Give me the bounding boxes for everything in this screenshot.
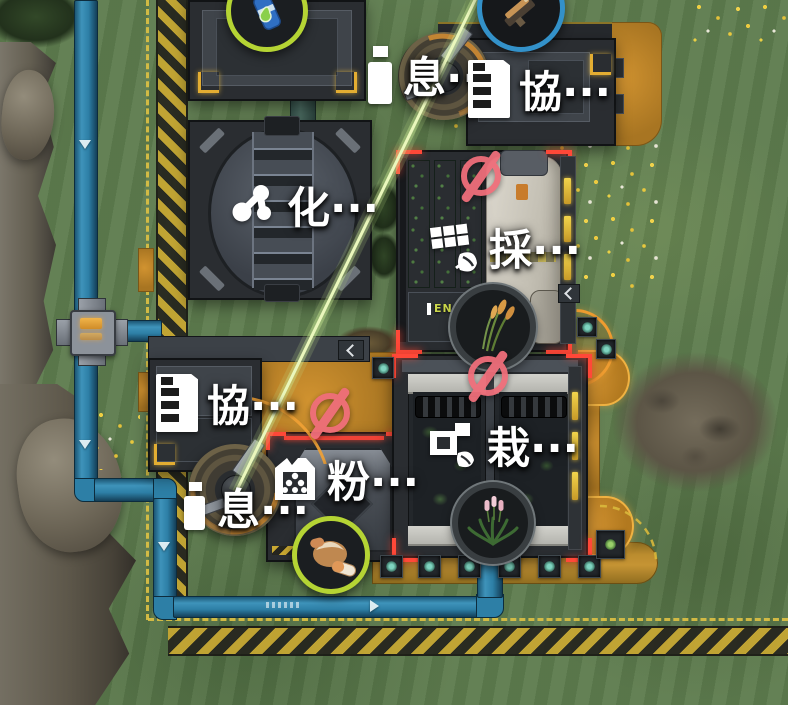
corner-brace (199, 265, 225, 291)
flow-arrow-icon (79, 140, 91, 149)
crop-tray (408, 160, 430, 288)
arrow-chip[interactable] (338, 340, 364, 360)
flowering-plant-icon (464, 494, 522, 552)
energy-tag: EN (427, 302, 453, 315)
molecule-icon (228, 180, 278, 230)
item-glyph-icon (378, 363, 389, 374)
building-label-chemical[interactable]: 化··· (228, 174, 379, 236)
label-text: 化··· (287, 174, 379, 236)
chevron-left-icon (564, 287, 577, 300)
canister-icon (239, 0, 295, 39)
grinder-icon (272, 455, 318, 503)
logistics-tile[interactable] (372, 357, 394, 379)
building-label-coop-top[interactable]: 協··· (468, 58, 611, 120)
selection-bracket (396, 330, 422, 354)
tool-icon (490, 0, 552, 39)
water-pipe[interactable] (74, 0, 98, 346)
pipe-junction[interactable] (56, 298, 126, 364)
water-pipe[interactable] (94, 478, 158, 502)
item-glyph-icon (386, 561, 397, 572)
corner-lamp-icon (154, 444, 175, 465)
junction-light (80, 333, 102, 340)
item-glyph-icon (504, 561, 515, 572)
corner-lamp-icon (198, 72, 219, 93)
wheat-icon (463, 297, 523, 357)
zone-boundary-line (148, 618, 788, 621)
zone-boundary-line (146, 0, 149, 620)
disabled-badge (307, 390, 353, 436)
harvester-icon (428, 220, 480, 274)
corner-lamp-icon (336, 72, 357, 93)
hazard-stripe-band (168, 626, 788, 656)
item-display-plant[interactable] (452, 482, 534, 564)
flower-patch (690, 0, 788, 44)
label-text: 粉··· (327, 448, 419, 510)
energy-text: EN (434, 302, 453, 315)
plant-glyph-icon (605, 539, 616, 550)
selection-bracket (392, 354, 418, 378)
reactor-cap (264, 116, 300, 136)
building-label-mill[interactable]: 粉··· (272, 448, 419, 510)
item-glyph-icon (424, 561, 435, 572)
selection-edge (284, 436, 384, 440)
item-glyph-icon (582, 322, 593, 333)
pipe-flow-label (266, 602, 302, 608)
corner-brace (335, 127, 361, 153)
machine-light (516, 184, 528, 200)
logistics-tile[interactable] (380, 555, 403, 578)
corner-brace (199, 127, 225, 153)
item-glyph-icon (464, 561, 475, 572)
food-icon (304, 528, 358, 582)
chevron-left-icon (346, 344, 359, 357)
logistics-tile[interactable] (538, 555, 561, 578)
junction-light (80, 318, 102, 329)
label-text: 栽··· (487, 414, 579, 476)
arrow-chip[interactable] (558, 284, 580, 303)
label-text: 採··· (489, 216, 581, 278)
edge-strip (400, 158, 406, 342)
pavement-pad (138, 248, 154, 292)
disabled-badge (458, 153, 504, 199)
game-map: EN (0, 0, 788, 705)
flow-arrow-icon (158, 542, 170, 551)
logistics-tile[interactable] (418, 555, 441, 578)
selection-bracket (396, 150, 422, 174)
item-glyph-icon (544, 561, 555, 572)
indicator-bar-icon (427, 303, 431, 315)
planter-icon (428, 421, 478, 469)
document-icon (156, 374, 198, 432)
disabled-badge (465, 353, 511, 399)
flow-arrow-icon (79, 440, 91, 449)
label-text: 協··· (519, 58, 611, 120)
logistics-tile[interactable] (596, 339, 616, 359)
rest-icon (368, 46, 394, 104)
building-label-coop-left[interactable]: 協··· (156, 372, 299, 434)
logistics-tile[interactable] (577, 317, 597, 337)
item-glyph-icon (584, 561, 595, 572)
flow-arrow-icon (370, 600, 379, 612)
label-text: 協··· (207, 372, 299, 434)
water-pipe[interactable] (173, 596, 480, 618)
logistics-tile[interactable] (596, 530, 625, 559)
dirt-pile (612, 352, 778, 492)
item-glyph-icon (601, 344, 612, 355)
reactor-cap (264, 284, 300, 302)
rest-icon (184, 482, 208, 532)
machine-cap (500, 150, 548, 176)
building-label-harvest[interactable]: 採··· (428, 216, 581, 278)
flower-patch (92, 408, 140, 470)
document-icon (468, 60, 510, 118)
building-label-planter[interactable]: 栽··· (428, 414, 579, 476)
selection-bracket (566, 354, 592, 378)
